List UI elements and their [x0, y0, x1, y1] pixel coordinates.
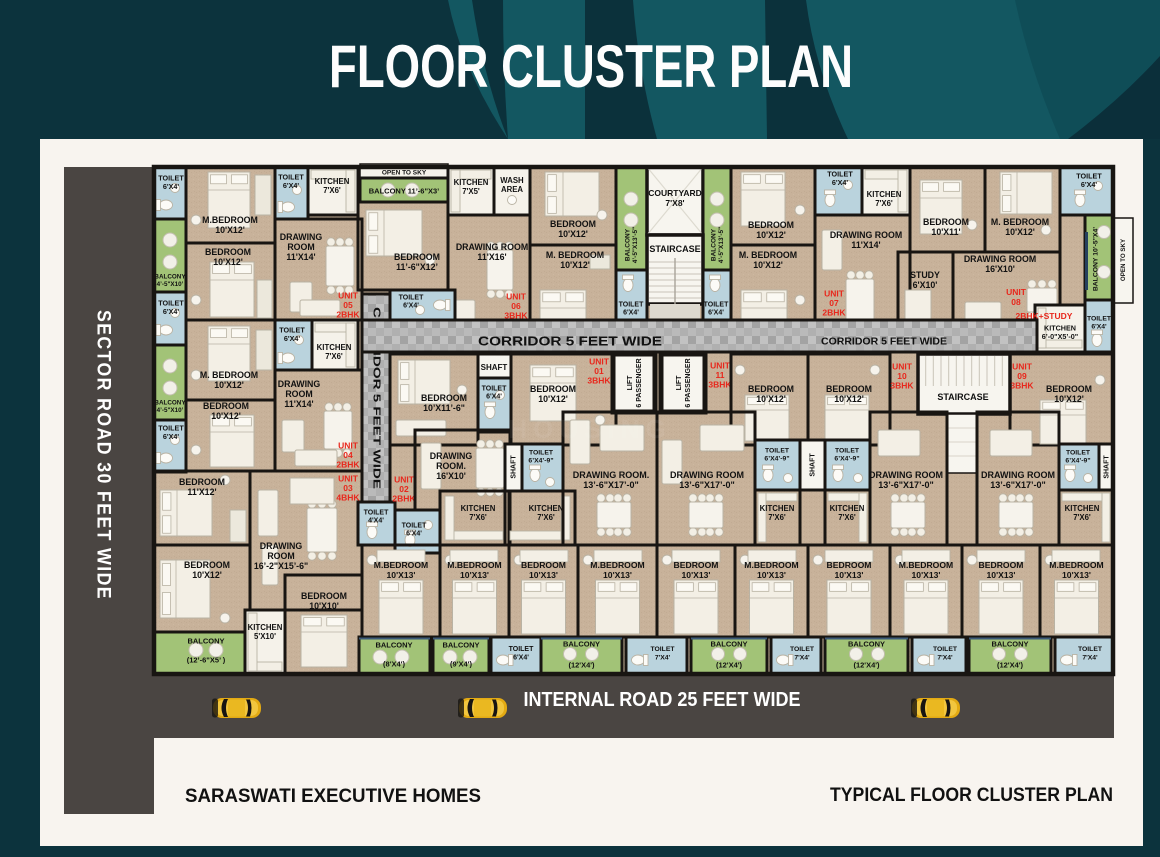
svg-text:OPEN TO SKY: OPEN TO SKY: [1120, 238, 1127, 281]
svg-text:STAIRCASE: STAIRCASE: [937, 392, 988, 402]
svg-text:TOILET6’X4’-9": TOILET6’X4’-9": [764, 447, 789, 462]
svg-text:(12'X4'): (12'X4'): [997, 661, 1024, 670]
svg-text:STUDY6'X10': STUDY6'X10': [910, 270, 940, 290]
svg-text:BALCONY: BALCONY: [710, 640, 747, 649]
svg-text:BEDROOM10’X11’-6": BEDROOM10’X11’-6": [421, 393, 467, 413]
svg-text:SARASWATI EXECUTIVE HOMES: SARASWATI EXECUTIVE HOMES: [185, 786, 481, 807]
svg-text:(9'X4'): (9'X4'): [450, 660, 472, 669]
svg-text:STAIRCASE: STAIRCASE: [649, 244, 700, 254]
svg-text:TYPICAL FLOOR CLUSTER PLAN: TYPICAL FLOOR CLUSTER PLAN: [830, 785, 1113, 806]
svg-text:(12’-6"X5’ ): (12’-6"X5’ ): [187, 656, 226, 665]
svg-text:SHAFT: SHAFT: [809, 453, 816, 477]
svg-text:KITCHEN6’-0"X5’-0": KITCHEN6’-0"X5’-0": [1042, 323, 1078, 341]
svg-text:BALCONY4’-5"X13’-5": BALCONY4’-5"X13’-5": [625, 227, 640, 264]
svg-text:TOILET6’X4’-9": TOILET6’X4’-9": [1065, 449, 1090, 464]
svg-text:(12'X4'): (12'X4'): [716, 661, 743, 670]
svg-text:BALCONY4’-5"X10’: BALCONY4’-5"X10’: [154, 400, 186, 415]
svg-text:BALCONY 10’-5"X4’: BALCONY 10’-5"X4’: [1092, 227, 1099, 291]
svg-text:BALCONY: BALCONY: [442, 641, 479, 650]
svg-text:BALCONY: BALCONY: [848, 640, 885, 649]
svg-text:BALCONY: BALCONY: [991, 640, 1028, 649]
svg-text:(8'X4'): (8'X4'): [383, 660, 405, 669]
svg-text:BALCONY4’-5"X13’-5": BALCONY4’-5"X13’-5": [711, 227, 726, 264]
svg-text:BALCONY: BALCONY: [563, 640, 600, 649]
svg-text:OPEN TO SKY: OPEN TO SKY: [382, 169, 427, 176]
svg-text:(12'X4'): (12'X4'): [568, 661, 595, 670]
svg-text:DRAWING ROOM13’-6"X17’-0": DRAWING ROOM13’-6"X17’-0": [981, 470, 1055, 490]
svg-text:FLOOR CLUSTER PLAN: FLOOR CLUSTER PLAN: [329, 33, 853, 100]
svg-text:BALCONY: BALCONY: [187, 637, 224, 646]
svg-text:WASHAREA: WASHAREA: [500, 176, 524, 194]
svg-text:CORRIDOR 5 FEET WIDE: CORRIDOR 5 FEET WIDE: [478, 334, 662, 348]
svg-text:SHAFT: SHAFT: [510, 455, 517, 479]
svg-text:BALCONY 11’-6"X3’: BALCONY 11’-6"X3’: [369, 187, 440, 196]
svg-text:INTERNAL ROAD 25 FEET WIDE: INTERNAL ROAD 25 FEET WIDE: [524, 689, 801, 711]
svg-text:DRAWING ROOM.13’-6"X17’-0": DRAWING ROOM.13’-6"X17’-0": [573, 470, 650, 490]
svg-text:BEDROOM11’-6"X12’: BEDROOM11’-6"X12’: [394, 252, 440, 272]
svg-text:(12'X4'): (12'X4'): [853, 661, 880, 670]
svg-text:SECTOR ROAD 30 FEET WIDE: SECTOR ROAD 30 FEET WIDE: [92, 310, 113, 600]
svg-text:BALCONY4’-5"X10’: BALCONY4’-5"X10’: [154, 274, 186, 289]
svg-text:TOILET6’X4’-9": TOILET6’X4’-9": [834, 447, 859, 462]
svg-text:SHAFT: SHAFT: [481, 363, 508, 372]
svg-text:HOUSING: HOUSING: [508, 414, 671, 444]
svg-text:DRAWING ROOM13’-6"X17’-0": DRAWING ROOM13’-6"X17’-0": [869, 470, 943, 490]
svg-text:BALCONY: BALCONY: [375, 641, 412, 650]
svg-text:DRAWING ROOM13’-6"X17’-0": DRAWING ROOM13’-6"X17’-0": [670, 470, 744, 490]
svg-text:TOILET6’X4’-9": TOILET6’X4’-9": [528, 449, 553, 464]
svg-text:SHAFT: SHAFT: [1103, 455, 1110, 479]
svg-text:CORRIDOR 5 FEET WIDE: CORRIDOR 5 FEET WIDE: [821, 336, 947, 348]
